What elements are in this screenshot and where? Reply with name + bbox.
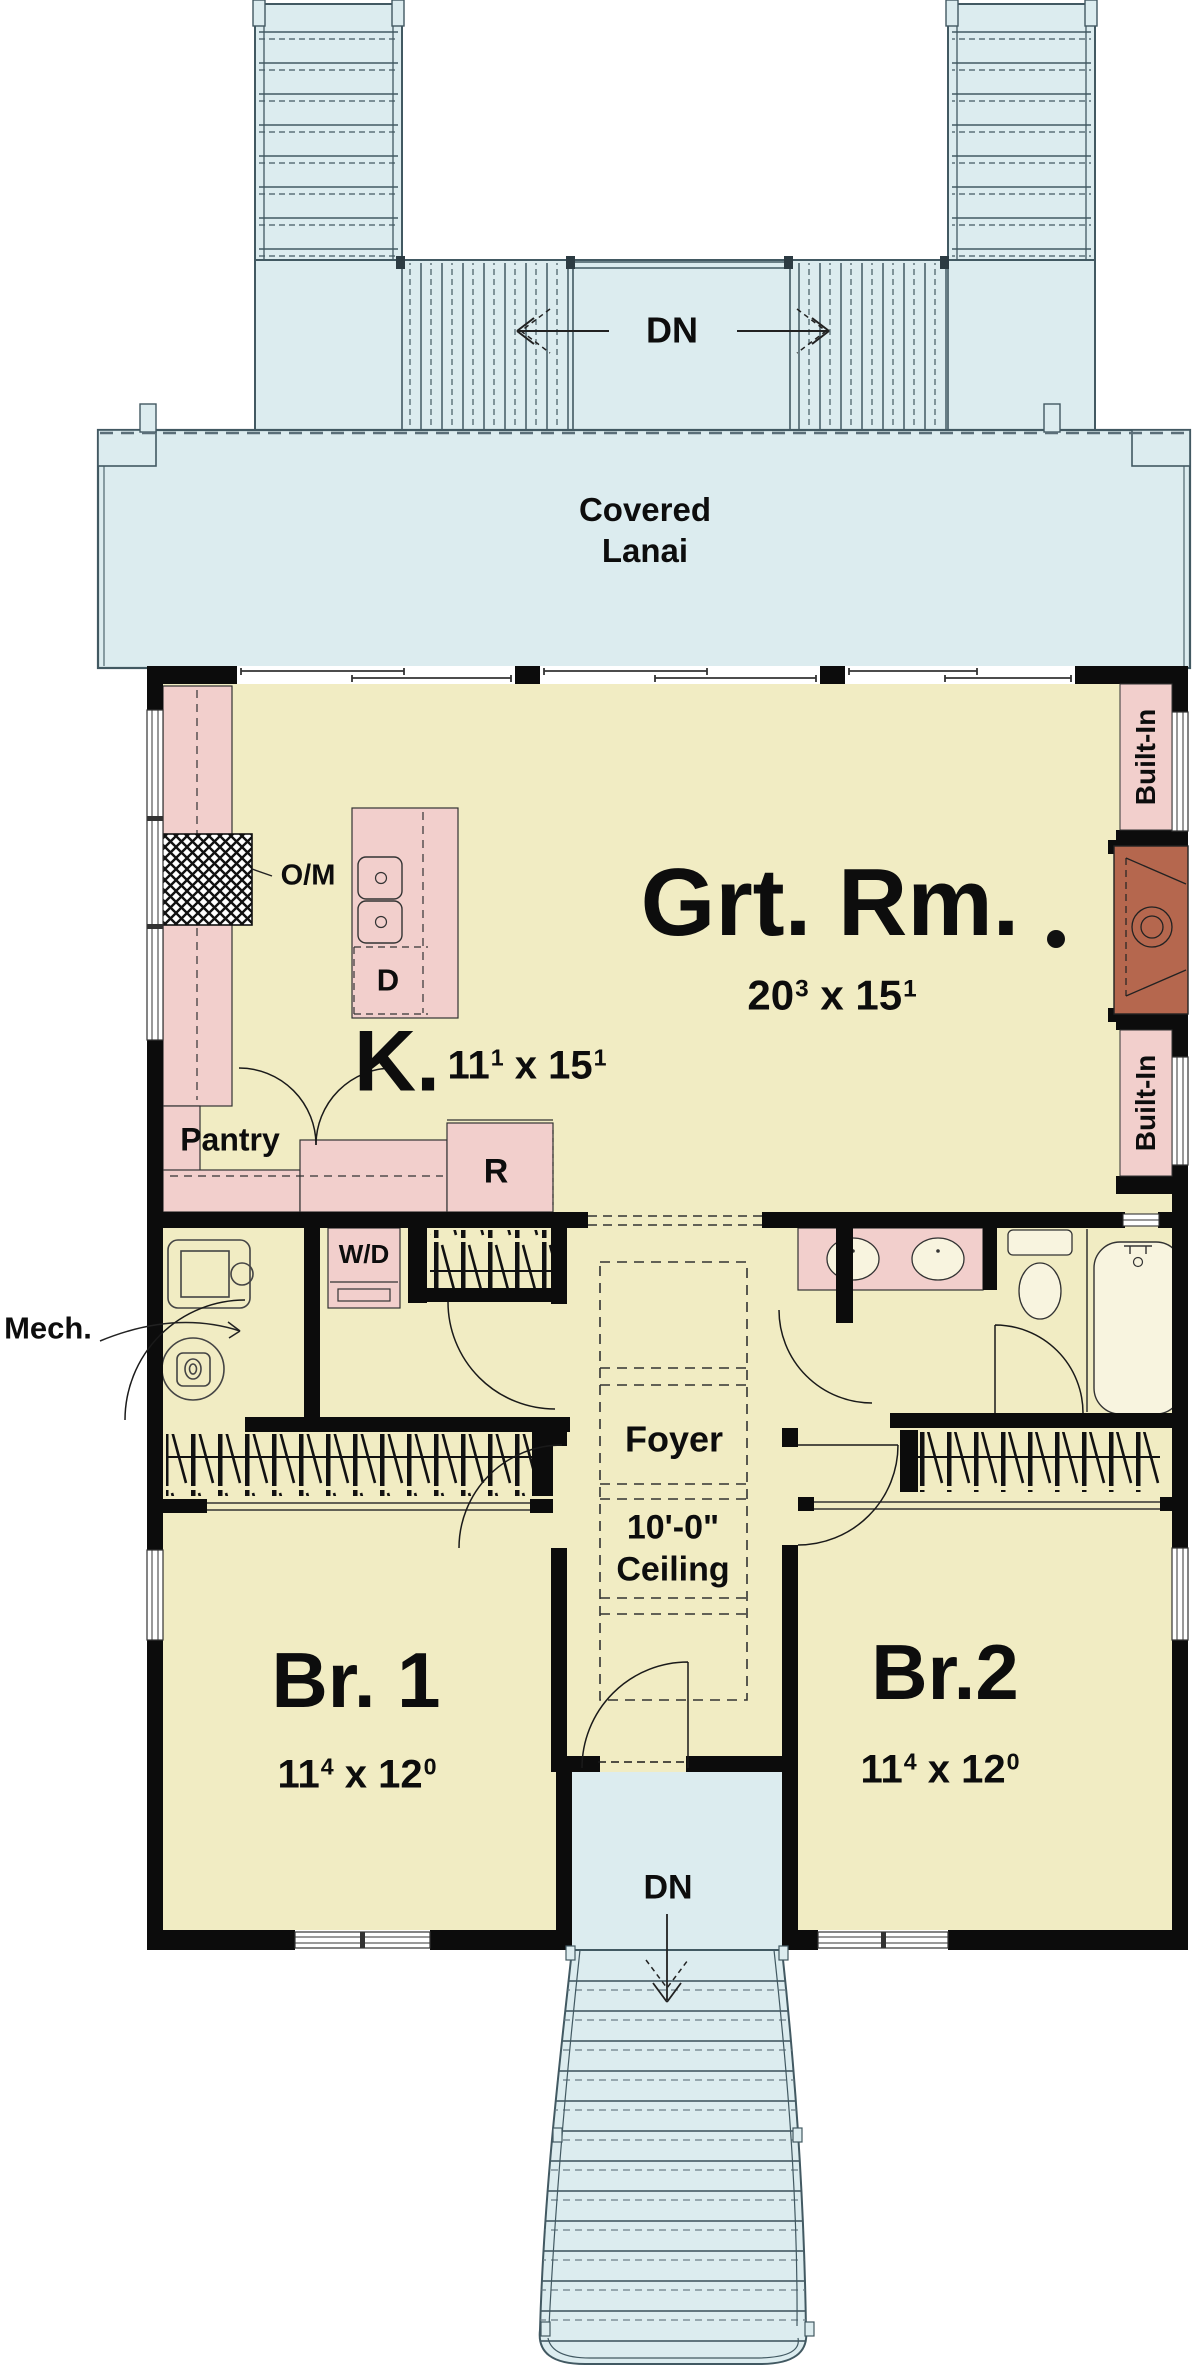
window-kitchen-left <box>147 710 163 1040</box>
label-kitchen: K. <box>354 1016 440 1109</box>
label-foyer: Foyer <box>625 1421 723 1460</box>
label-bedroom2-dim: 114 x 120 <box>860 1748 1019 1791</box>
window-right-upper <box>1172 712 1188 831</box>
sink-right <box>912 1238 964 1280</box>
label-dishwasher: D <box>377 963 399 996</box>
column-dot <box>1047 930 1065 948</box>
window-right-lower <box>1172 1057 1188 1165</box>
label-built-in-top: Built-In <box>1131 709 1161 805</box>
label-dn-bottom: DN <box>643 1870 692 1907</box>
label-washer-dryer: W/D <box>339 1240 390 1268</box>
toilet-tank <box>1008 1230 1072 1255</box>
label-oven-microwave: O/M <box>281 860 336 891</box>
label-refrigerator: R <box>484 1154 509 1191</box>
toilet-bowl <box>1019 1263 1061 1319</box>
label-great-room: Grt. Rm. <box>641 851 1020 955</box>
window-br1-bottom <box>295 1932 430 1948</box>
label-foyer-ceiling-word: Ceiling <box>616 1552 729 1589</box>
window-br2-right <box>1172 1548 1188 1640</box>
floor-plan-drawing <box>0 0 1200 2367</box>
bathtub <box>1094 1242 1182 1414</box>
floor-plan: DN Covered Lanai Grt. Rm. 203 x 151 K. 1… <box>0 0 1200 2367</box>
label-mechanical: Mech. <box>4 1311 92 1344</box>
label-kitchen-dim: 111 x 151 <box>447 1044 606 1087</box>
window-br2-bottom <box>818 1932 948 1948</box>
label-great-room-dim: 203 x 151 <box>747 972 916 1017</box>
label-foyer-ceiling-height: 10'-0" <box>627 1510 719 1547</box>
sliding-doors-lanai <box>237 666 1075 684</box>
label-bedroom1: Br. 1 <box>271 1638 440 1722</box>
entry-stairs <box>530 1772 820 2364</box>
label-built-in-bottom: Built-In <box>1131 1055 1161 1151</box>
window-br1-left <box>147 1550 163 1640</box>
window-bath-top <box>1123 1214 1159 1226</box>
label-bedroom1-dim: 114 x 120 <box>277 1753 436 1796</box>
label-pantry: Pantry <box>180 1123 280 1158</box>
label-covered-lanai: Covered Lanai <box>579 489 711 572</box>
label-bedroom2: Br.2 <box>871 1630 1018 1714</box>
label-dn-top: DN <box>646 312 698 351</box>
upper-stairs <box>253 0 1097 432</box>
